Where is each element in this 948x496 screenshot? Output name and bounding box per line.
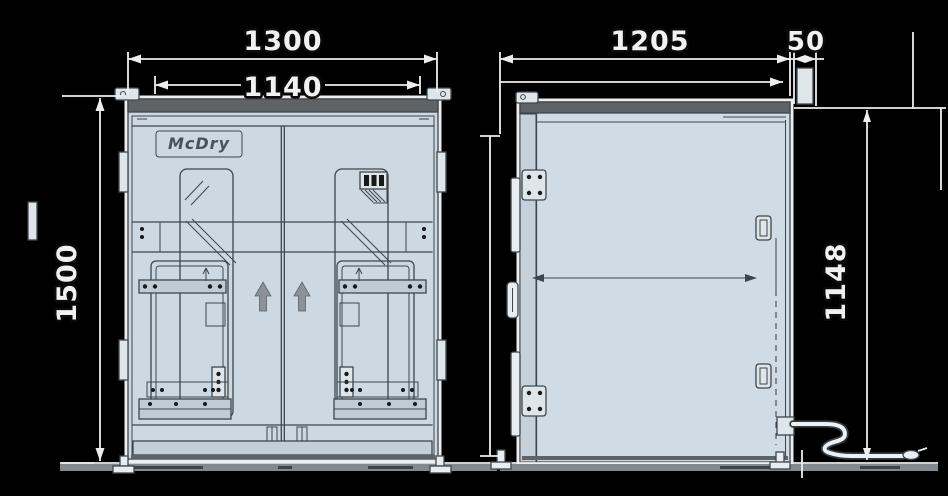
dim-label-1140: 1140 xyxy=(243,72,322,103)
dim-label-1500: 1500 xyxy=(52,243,83,322)
brand-logo-label: McDry xyxy=(168,134,230,153)
hinge-plate-upper xyxy=(522,170,546,200)
dim-label-1300: 1300 xyxy=(243,26,322,57)
hinge-right-lower xyxy=(437,340,446,380)
dim-label-1148: 1148 xyxy=(821,242,852,321)
door-edge-bracket-upper xyxy=(511,178,520,252)
hinge-plate-lower xyxy=(522,386,546,416)
hinge-top-left xyxy=(115,88,139,100)
side-top-hinge xyxy=(516,92,538,103)
hinge-top-right xyxy=(427,88,451,100)
edge-crop-mark xyxy=(28,202,37,240)
dim-label-50: 50 xyxy=(787,27,825,57)
cabinet-body-side xyxy=(520,102,790,462)
cord-plug-icon xyxy=(903,451,919,460)
hinge-right-upper xyxy=(437,152,446,192)
side-top-edge xyxy=(520,102,790,113)
technical-drawing: McDry xyxy=(0,0,948,496)
power-cord xyxy=(793,424,927,460)
drawing-canvas: McDry xyxy=(0,0,948,496)
side-view xyxy=(507,68,927,464)
hinge-left-upper xyxy=(119,152,128,192)
front-view: McDry xyxy=(115,88,451,461)
dim-label-1205: 1205 xyxy=(610,26,689,57)
door-edge-bracket-lower xyxy=(511,352,520,436)
hinge-left-lower xyxy=(119,340,128,380)
rear-wall-spacer xyxy=(797,68,813,104)
dimension-front-height: 1500 xyxy=(52,96,126,463)
